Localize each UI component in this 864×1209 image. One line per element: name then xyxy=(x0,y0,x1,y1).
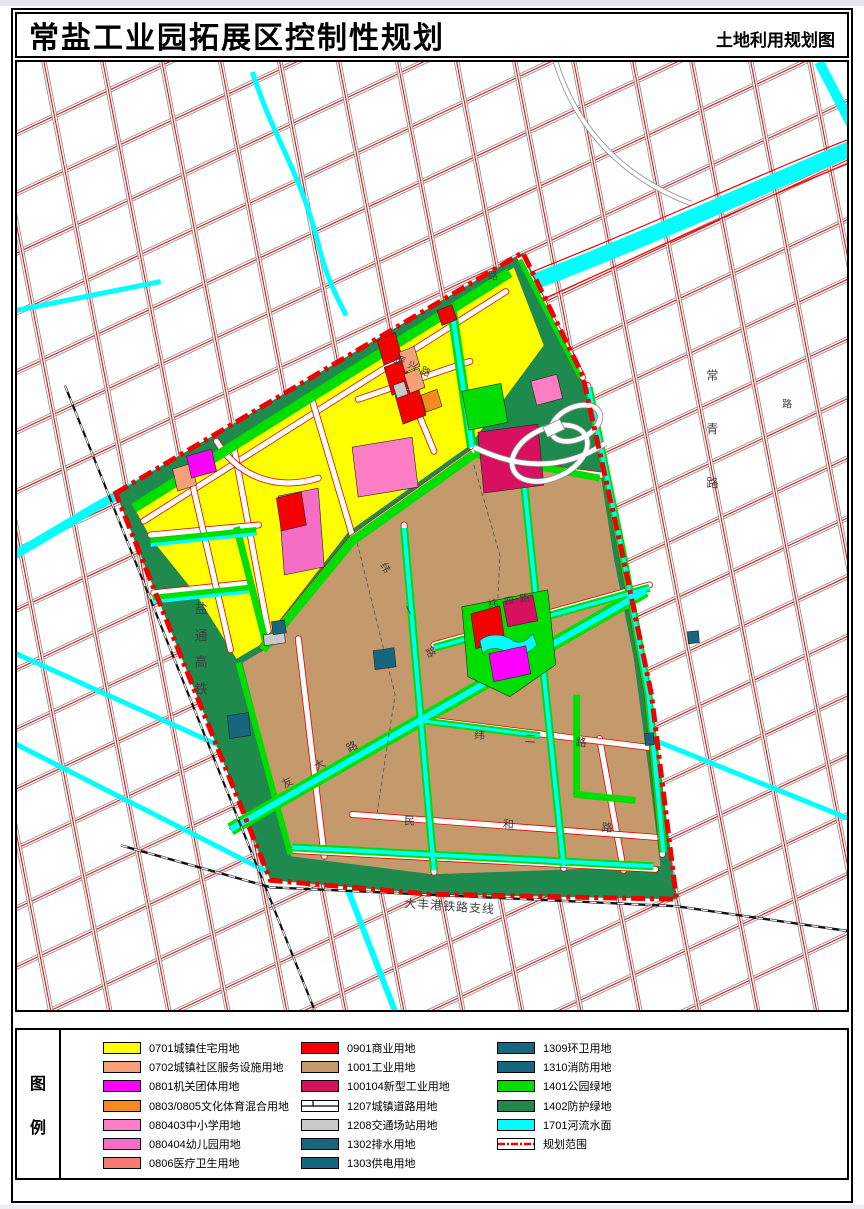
legend-item-label: 规划范围 xyxy=(543,1136,587,1152)
legend-column-2: 0901商业用地1001工业用地100104新型工业用地1207城镇道路用地12… xyxy=(301,1038,450,1173)
title-bar: 常盐工业园拓展区控制性规划 土地利用规划图 xyxy=(15,12,849,58)
legend-item-label: 1701河流水面 xyxy=(543,1117,611,1133)
color-swatch xyxy=(301,1119,339,1131)
legend-item-label: 1303供电用地 xyxy=(347,1155,415,1171)
legend-item-label: 100104新型工业用地 xyxy=(347,1078,450,1094)
color-swatch xyxy=(103,1138,141,1150)
legend-item: 1303供电用地 xyxy=(301,1154,450,1173)
color-swatch xyxy=(103,1157,141,1169)
color-swatch xyxy=(497,1080,535,1092)
legend-title-char: 图 xyxy=(30,1070,46,1094)
legend-item-label: 0806医疗卫生用地 xyxy=(149,1155,239,1171)
legend-item-label: 0701城镇住宅用地 xyxy=(149,1040,239,1056)
legend-item: 0803/0805文化体育混合用地 xyxy=(103,1096,289,1115)
screen-edge-bottom xyxy=(0,1205,864,1209)
boundary-swatch xyxy=(497,1138,535,1150)
map-subtitle: 土地利用规划图 xyxy=(716,26,835,56)
color-swatch xyxy=(497,1042,535,1054)
legend-item-label: 1309环卫用地 xyxy=(543,1040,611,1056)
road-label: 路 xyxy=(488,270,498,283)
legend: 图 例 0701城镇住宅用地0702城镇社区服务设施用地0801机关团体用地08… xyxy=(15,1028,849,1180)
color-swatch xyxy=(301,1080,339,1092)
color-swatch xyxy=(301,1157,339,1169)
legend-item-label: 1302排水用地 xyxy=(347,1136,415,1152)
road-label: 路 xyxy=(782,397,792,410)
legend-item: 1701河流水面 xyxy=(497,1115,611,1134)
park-block xyxy=(462,383,508,430)
legend-item: 0702城镇社区服务设施用地 xyxy=(103,1057,289,1076)
page-title: 常盐工业园拓展区控制性规划 xyxy=(29,13,445,57)
legend-item-label: 1208交通场站用地 xyxy=(347,1117,437,1133)
color-swatch xyxy=(103,1100,141,1112)
commercial-block xyxy=(276,492,306,531)
legend-title: 图 例 xyxy=(17,1030,61,1178)
legend-item-label: 1402防护绿地 xyxy=(543,1098,611,1114)
legend-item: 1309环卫用地 xyxy=(497,1038,611,1057)
legend-item: 规划范围 xyxy=(497,1134,611,1153)
color-swatch xyxy=(497,1119,535,1131)
legend-item: 0801机关团体用地 xyxy=(103,1077,289,1096)
legend-column-1: 0701城镇住宅用地0702城镇社区服务设施用地0801机关团体用地0803/0… xyxy=(103,1038,289,1173)
color-swatch xyxy=(103,1119,141,1131)
legend-item: 100104新型工业用地 xyxy=(301,1077,450,1096)
legend-item-label: 1401公园绿地 xyxy=(543,1078,611,1094)
legend-column-3: 1309环卫用地1310消防用地1401公园绿地1402防护绿地1701河流水面… xyxy=(497,1038,611,1154)
legend-item-label: 1001工业用地 xyxy=(347,1059,415,1075)
color-swatch xyxy=(301,1138,339,1150)
school-block xyxy=(352,437,418,497)
color-swatch xyxy=(103,1042,141,1054)
legend-item: 0806医疗卫生用地 xyxy=(103,1154,289,1173)
legend-item-label: 0803/0805文化体育混合用地 xyxy=(149,1098,289,1114)
legend-item: 1207城镇道路用地 xyxy=(301,1096,450,1115)
legend-item-label: 080404幼儿园用地 xyxy=(149,1136,241,1152)
road-swatch xyxy=(301,1100,339,1112)
legend-item: 1401公园绿地 xyxy=(497,1077,611,1096)
legend-item: 1302排水用地 xyxy=(301,1134,450,1153)
legend-item-label: 1207城镇道路用地 xyxy=(347,1098,437,1114)
legend-item: 1310消防用地 xyxy=(497,1057,611,1076)
screen-edge-top xyxy=(0,0,864,6)
color-swatch xyxy=(301,1061,339,1073)
legend-item: 1402防护绿地 xyxy=(497,1096,611,1115)
color-swatch xyxy=(301,1042,339,1054)
legend-item: 080403中小学用地 xyxy=(103,1115,289,1134)
legend-item-label: 0901商业用地 xyxy=(347,1040,415,1056)
legend-item-label: 080403中小学用地 xyxy=(149,1117,241,1133)
color-swatch xyxy=(103,1061,141,1073)
color-swatch xyxy=(497,1100,535,1112)
legend-item-label: 1310消防用地 xyxy=(543,1059,611,1075)
legend-item: 0901商业用地 xyxy=(301,1038,450,1057)
legend-item: 1001工业用地 xyxy=(301,1057,450,1076)
color-swatch xyxy=(497,1061,535,1073)
legend-title-char: 例 xyxy=(30,1114,46,1138)
legend-item-label: 0801机关团体用地 xyxy=(149,1078,239,1094)
landuse-map: 盐通高铁大丰港铁路支线纬二路民和路纬四路纬一路振兴路友大路常青路路路 xyxy=(17,62,847,1010)
plan-sheet-frame: 常盐工业园拓展区控制性规划 土地利用规划图 xyxy=(11,8,853,1203)
legend-item: 080404幼儿园用地 xyxy=(103,1134,289,1153)
legend-item: 1208交通场站用地 xyxy=(301,1115,450,1134)
legend-item-label: 0702城镇社区服务设施用地 xyxy=(149,1059,283,1075)
legend-item: 0701城镇住宅用地 xyxy=(103,1038,289,1057)
color-swatch xyxy=(103,1080,141,1092)
map-frame: 盐通高铁大丰港铁路支线纬二路民和路纬四路纬一路振兴路友大路常青路路路 xyxy=(15,60,849,1012)
